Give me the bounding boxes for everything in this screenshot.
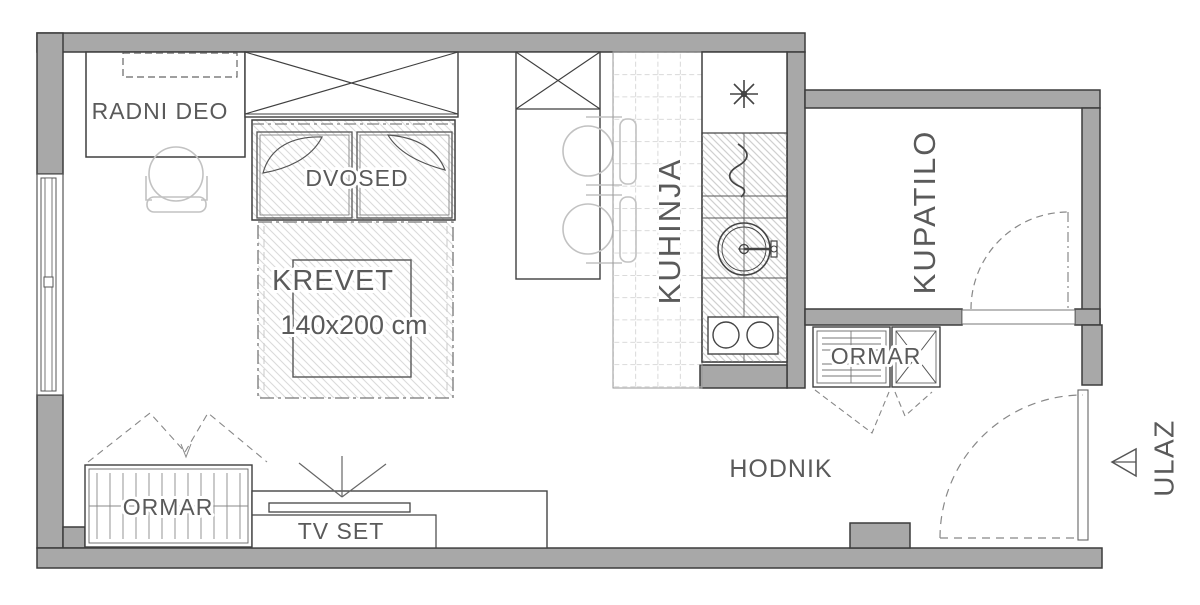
wall-top [37,33,805,52]
table [516,52,600,279]
cooktop [708,317,778,354]
entrance-arrow-icon [1112,449,1136,476]
floor-plan-drawing: RADNI DEO DVOSED KREVET 140x200 cm [0,0,1200,605]
kitchen: KUHINJA [613,52,787,388]
hall-wardrobe-door-swing-1 [815,390,889,433]
tv-stand [252,491,547,548]
bathroom-door-threshold [962,310,1075,324]
faucet-handle [771,241,777,257]
bed-label: KREVET [272,265,394,297]
sofa: DVOSED [252,120,455,220]
hall-wardrobe: ORMAR [813,327,940,433]
wall-hall-right [1082,325,1102,385]
tv-set: TV SET [252,456,547,548]
bathroom: KUPATILO [907,130,1075,324]
kitchen-label: KUHINJA [652,158,687,305]
living-wardrobe: ORMAR [85,413,267,547]
wall-bath-top [805,90,1100,108]
bed-dimensions-label: 140x200 cm [280,310,427,340]
entrance: ULAZ [940,390,1179,540]
entrance-label: ULAZ [1148,419,1179,497]
hall-wardrobe-label: ORMAR [831,343,922,369]
wall-bath-bottom-right [1075,309,1100,325]
desk-chair-back [147,197,206,212]
cooktop-body [708,317,778,354]
work-area-label: RADNI DEO [92,98,229,124]
wall-bottom-stub [850,523,910,548]
wall-bath-bottom-left [805,309,962,325]
window-left [37,174,63,395]
tv-label: TV SET [298,518,385,544]
entrance-door-leaf [1078,390,1088,540]
wall-left-lower [37,395,63,548]
living-wardrobe-label: ORMAR [123,494,214,520]
boiler-icon [730,80,758,108]
bed-zone: KREVET 140x200 cm [258,222,453,398]
hallway-label: HODNIK [729,455,832,483]
entrance-door-swing [940,395,1083,538]
wall-kitchen-bottom-stub [700,365,787,388]
overhead-cabinet-sofa [245,52,458,117]
wall-kitchen-right [787,52,805,388]
sofa-label: DVOSED [305,165,408,191]
floor-plan: RADNI DEO DVOSED KREVET 140x200 cm [0,0,1200,605]
living-wardrobe-door-swing-1 [88,413,185,462]
bathroom-label: KUPATILO [907,130,942,295]
hall-wardrobe-door-swing-2 [895,392,932,416]
window-mullion [44,277,53,287]
bathroom-door-swing [971,212,1068,309]
wall-left-notch [63,527,85,548]
wall-left-upper [37,33,63,174]
living-wardrobe-door-swing-2 [185,413,267,462]
wall-bottom [37,548,1102,568]
work-area: RADNI DEO [86,52,245,212]
tv-screen [269,503,410,512]
wall-bath-right [1082,108,1100,325]
